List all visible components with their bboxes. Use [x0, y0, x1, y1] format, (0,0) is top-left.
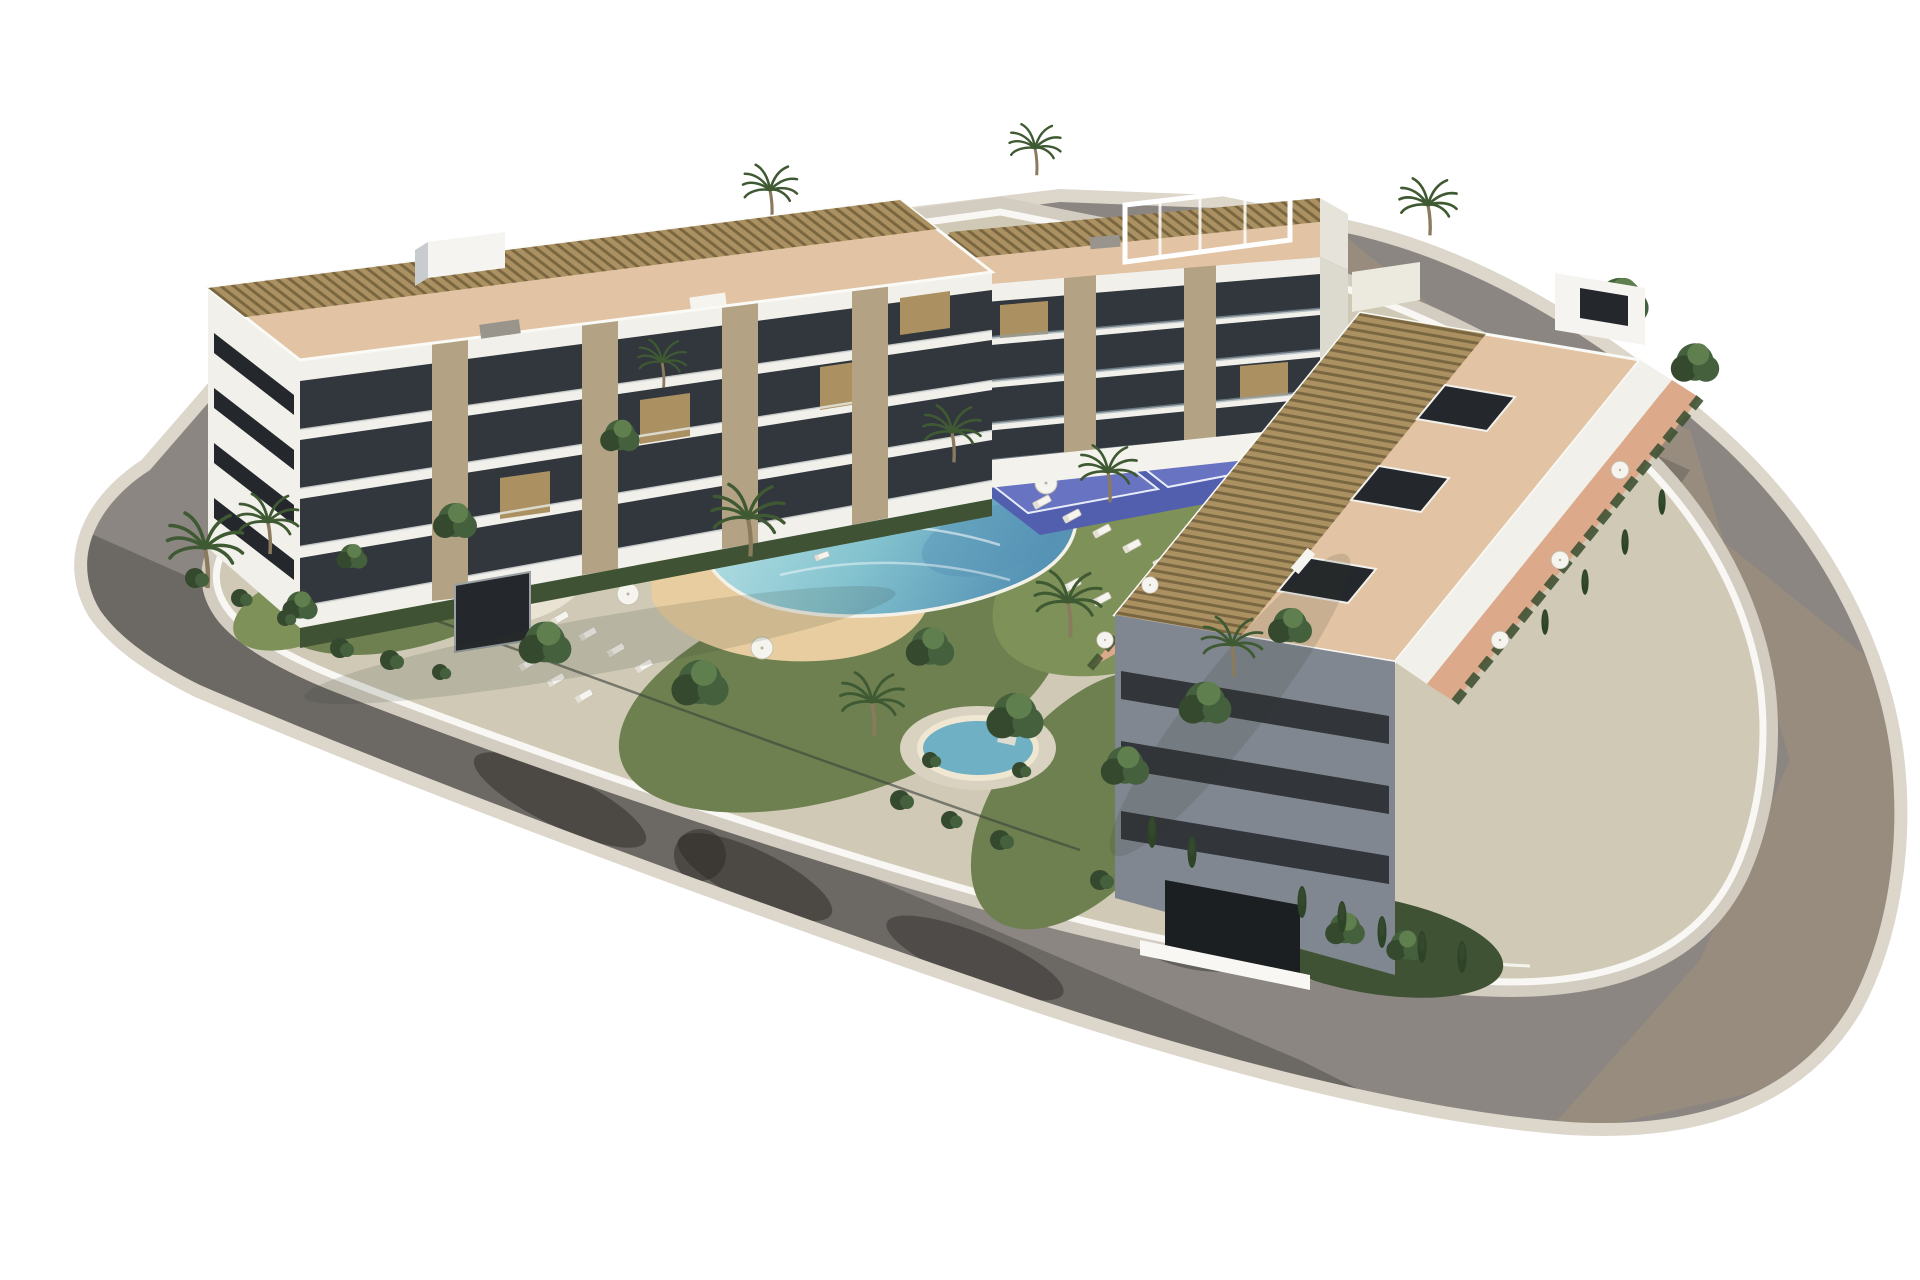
- wood-panel: [900, 291, 950, 335]
- cypress-tree: [1418, 931, 1427, 963]
- render-canvas: [0, 0, 1920, 1280]
- tree: [1671, 343, 1719, 382]
- cypress-tree: [1298, 886, 1307, 918]
- parasol: [1611, 461, 1629, 479]
- palm-tree: [743, 165, 797, 219]
- stone-pillar: [1184, 265, 1216, 443]
- cypress-tree: [1621, 529, 1628, 555]
- stone-pillar: [432, 339, 468, 601]
- parasol: [1097, 632, 1114, 649]
- parasol: [1551, 551, 1569, 569]
- palm-tree: [1010, 124, 1061, 175]
- palm-tree: [1400, 178, 1457, 235]
- cypress-tree: [1188, 836, 1197, 868]
- cypress-tree: [1658, 489, 1665, 515]
- palm-shadow: [0, 529, 78, 597]
- stone-pillar: [852, 285, 888, 525]
- architectural-render: [0, 0, 1920, 1280]
- wood-panel: [640, 393, 690, 444]
- cypress-tree: [1581, 569, 1588, 595]
- cypress-tree: [1378, 916, 1387, 948]
- stone-pillar: [1064, 275, 1096, 456]
- parasol: [1142, 577, 1159, 594]
- cypress-tree: [1148, 816, 1157, 848]
- parasol: [1491, 631, 1509, 649]
- cypress-tree: [1541, 609, 1548, 635]
- cypress-tree: [1458, 941, 1467, 973]
- tree-shadow: [674, 829, 726, 881]
- cypress-tree: [1338, 901, 1347, 933]
